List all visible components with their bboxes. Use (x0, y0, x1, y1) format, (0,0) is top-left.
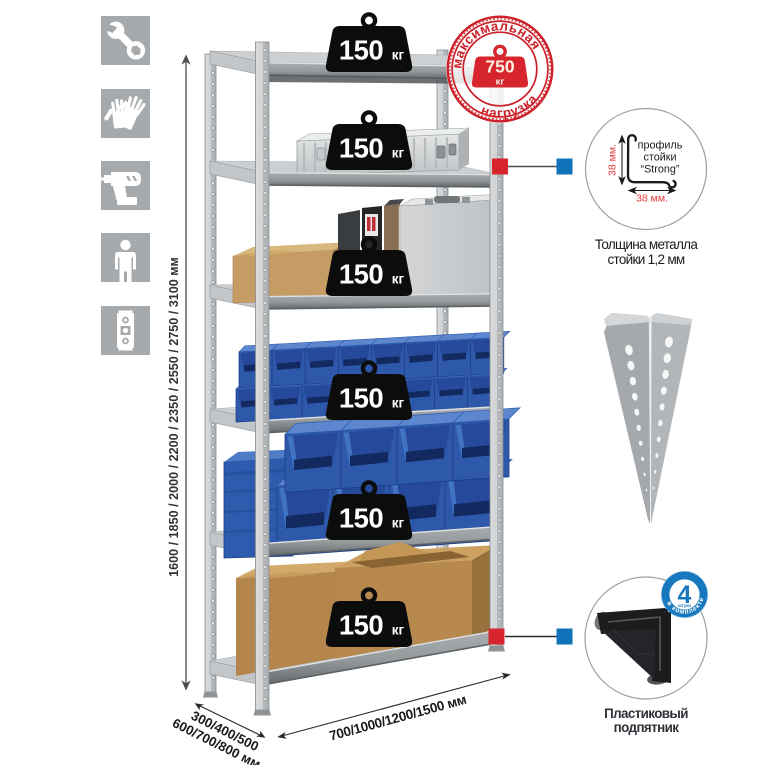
svg-text:“Strong”: “Strong” (640, 164, 679, 176)
svg-text:Пластиковый: Пластиковый (604, 706, 688, 721)
svg-text:штуки: штуки (678, 603, 691, 608)
svg-text:38 мм.: 38 мм. (636, 193, 668, 205)
svg-text:Толщина металла: Толщина металла (595, 237, 698, 252)
svg-text:1600 / 1850 / 2000 / 2200 / 23: 1600 / 1850 / 2000 / 2200 / 2350 / 2550 … (167, 257, 181, 577)
svg-text:подпятник: подпятник (614, 720, 680, 735)
svg-text:750: 750 (485, 57, 514, 77)
svg-text:стойки: стойки (643, 152, 676, 164)
svg-text:стойки 1,2 мм: стойки 1,2 мм (607, 252, 684, 267)
svg-text:профиль: профиль (638, 140, 683, 152)
svg-text:кг: кг (496, 77, 505, 88)
svg-text:38 мм.: 38 мм. (607, 144, 619, 176)
